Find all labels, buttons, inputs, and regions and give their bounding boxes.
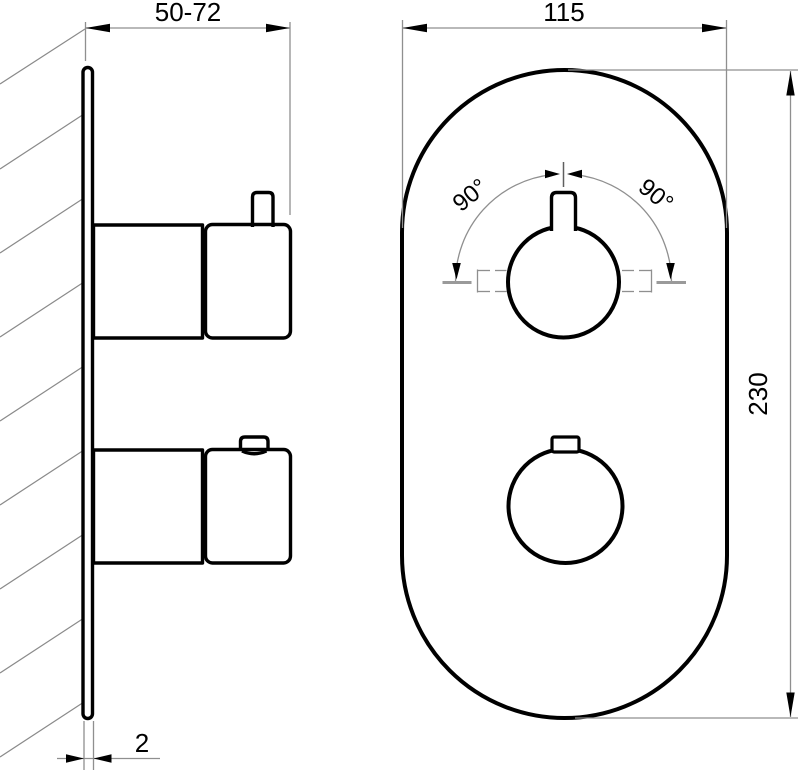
- hatch-line: [0, 114, 84, 169]
- arc-arrow-right-stop: [666, 263, 675, 280]
- arc-arrow-top-right: [567, 170, 582, 178]
- dimension-plate-thickness: 2: [57, 721, 160, 770]
- upper-valve-base-side: [94, 225, 203, 338]
- dimension-label-width: 115: [543, 0, 584, 27]
- hatch-line: [0, 534, 84, 589]
- dim-arrow-right: [94, 754, 112, 762]
- wall-hatching: [0, 29, 85, 757]
- side-view: [0, 29, 291, 757]
- front-view: 90° 90°: [402, 70, 727, 718]
- lower-handle-knob-front: [509, 449, 623, 563]
- lower-valve-handle-side: [206, 450, 291, 564]
- upper-valve-handle-side: [206, 225, 291, 339]
- hatch-line: [0, 198, 84, 253]
- hatch-line: [0, 29, 85, 84]
- phantom-lever-left: [478, 270, 507, 293]
- hatch-line: [0, 618, 84, 673]
- dim-arrow-right: [266, 24, 290, 32]
- dimension-label-height: 230: [743, 372, 773, 415]
- dim-arrow-left: [66, 754, 84, 762]
- dimensions: 50-72 115 230 2: [57, 0, 798, 770]
- faceplate-front: [402, 70, 727, 718]
- dimension-label-depth: 50-72: [155, 0, 222, 27]
- dim-arrow-bottom: [786, 693, 794, 718]
- technical-drawing-canvas: 90° 90° 50-72 115: [0, 0, 800, 771]
- upper-valve-side: [94, 193, 291, 339]
- lower-valve-base-side: [94, 450, 203, 563]
- dimension-plate-height: 230: [568, 70, 798, 718]
- lower-handle-grip-front: [552, 437, 579, 452]
- hatch-line: [0, 366, 84, 421]
- upper-handle-front: 90° 90°: [443, 162, 687, 338]
- mixer-installation-drawing: 90° 90° 50-72 115: [0, 0, 800, 771]
- rotation-angle-label-left: 90°: [448, 173, 493, 217]
- arc-arrow-left-stop: [452, 263, 461, 280]
- lower-valve-side: [94, 437, 291, 563]
- dim-arrow-left: [403, 24, 428, 32]
- dimension-wall-to-front: 50-72: [86, 0, 291, 215]
- phantom-lever-right: [622, 270, 652, 293]
- rotation-angle-label-right: 90°: [633, 173, 678, 217]
- upper-handle-lever-front: [552, 193, 576, 232]
- upper-handle-knob-front: [508, 227, 619, 338]
- lower-handle-front: [509, 437, 623, 563]
- dim-arrow-left: [86, 24, 111, 32]
- hatch-line: [0, 282, 84, 337]
- dimension-label-thickness: 2: [135, 728, 149, 758]
- hatch-line: [0, 702, 84, 757]
- dim-arrow-top: [786, 71, 794, 96]
- hatch-line: [0, 450, 84, 505]
- upper-valve-lever-side: [253, 193, 274, 228]
- lower-valve-grip-base-curve: [242, 451, 267, 454]
- dim-arrow-right: [702, 24, 727, 32]
- arc-arrow-top-left: [545, 170, 560, 178]
- mounting-plate-side: [83, 68, 93, 719]
